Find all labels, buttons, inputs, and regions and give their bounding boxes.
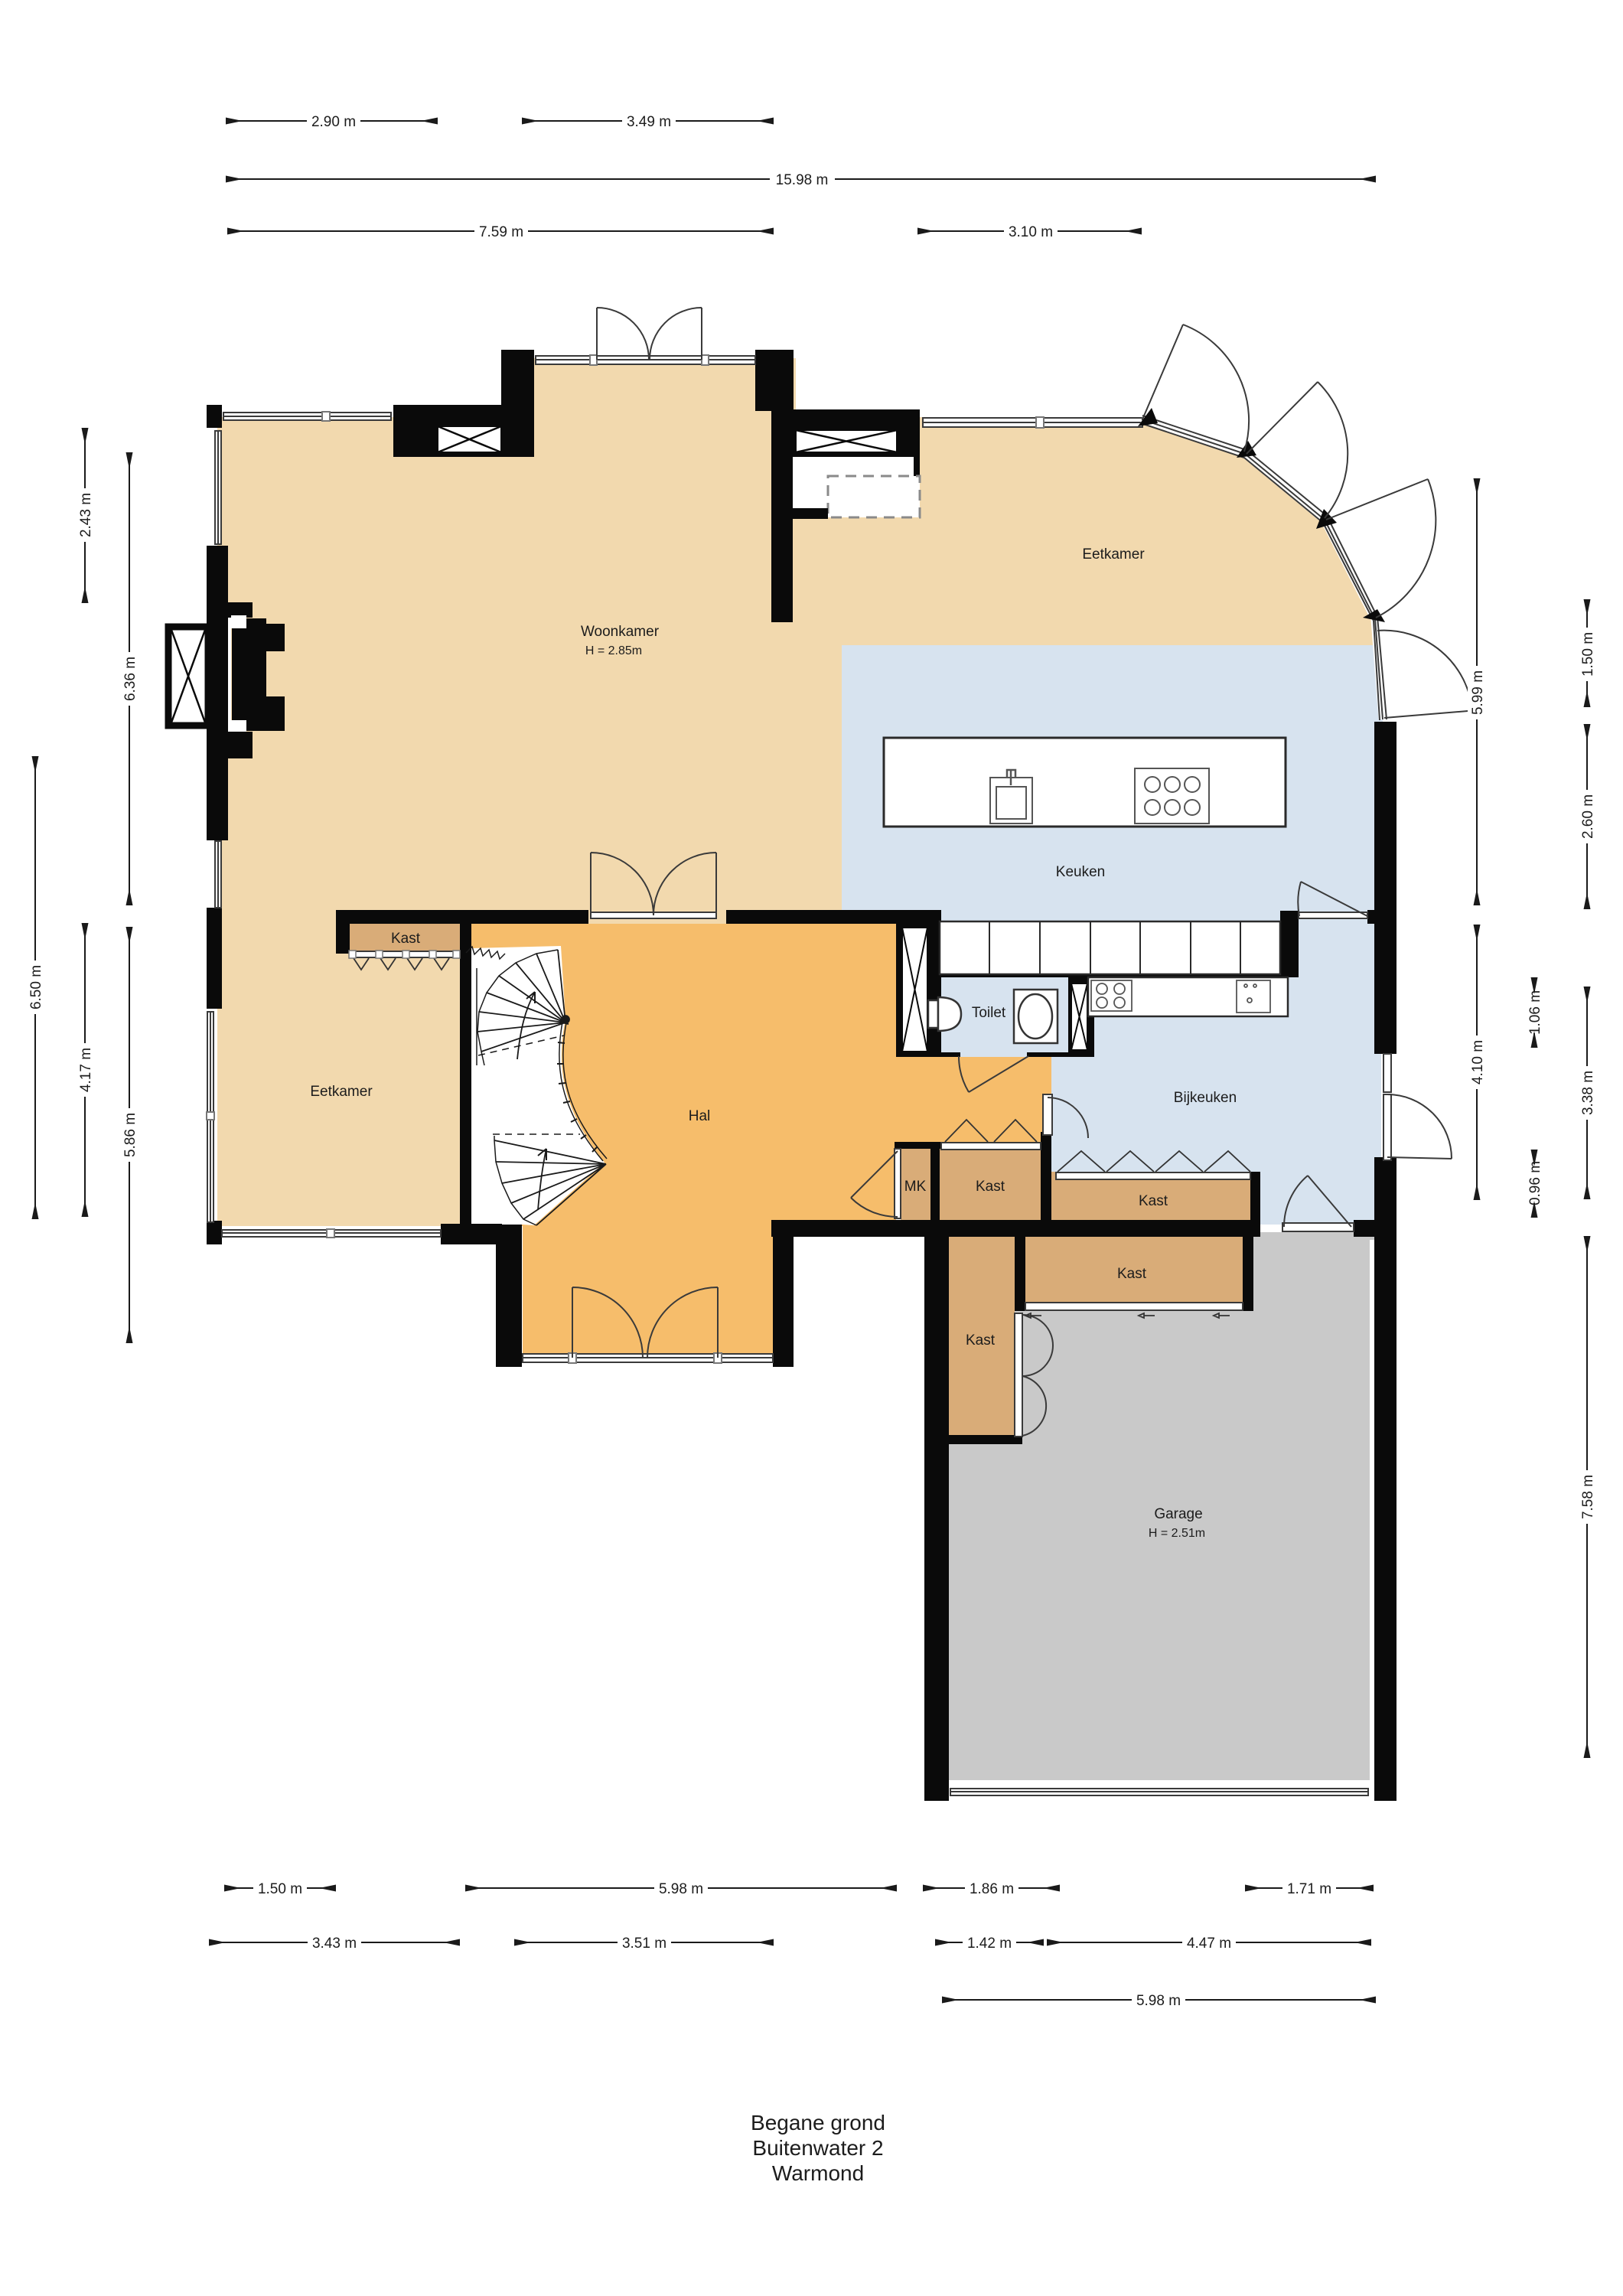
svg-text:3.10 m: 3.10 m [1009, 224, 1053, 240]
svg-text:3.43 m: 3.43 m [312, 1936, 357, 1952]
svg-text:Garage: Garage [1154, 1506, 1202, 1522]
svg-text:Kast: Kast [1139, 1193, 1168, 1209]
svg-text:3.51 m: 3.51 m [622, 1936, 666, 1952]
svg-text:Hal: Hal [689, 1108, 711, 1124]
svg-text:6.50 m: 6.50 m [28, 965, 44, 1009]
svg-text:2.90 m: 2.90 m [311, 114, 356, 130]
svg-text:4.17 m: 4.17 m [78, 1048, 94, 1092]
svg-text:Begane grond: Begane grond [751, 2111, 885, 2135]
svg-text:Keuken: Keuken [1056, 864, 1105, 880]
svg-text:0.96 m: 0.96 m [1527, 1161, 1543, 1205]
svg-text:Kast: Kast [391, 931, 421, 947]
svg-text:Woonkamer: Woonkamer [581, 624, 660, 640]
svg-text:4.10 m: 4.10 m [1470, 1040, 1486, 1084]
svg-text:4.47 m: 4.47 m [1187, 1936, 1231, 1952]
svg-text:3.49 m: 3.49 m [627, 114, 671, 130]
svg-text:1.86 m: 1.86 m [970, 1881, 1014, 1897]
svg-text:2.60 m: 2.60 m [1580, 794, 1596, 839]
svg-text:MK: MK [904, 1179, 927, 1195]
svg-text:Bijkeuken: Bijkeuken [1174, 1090, 1237, 1106]
svg-text:5.99 m: 5.99 m [1470, 670, 1486, 715]
svg-text:Eetkamer: Eetkamer [310, 1084, 373, 1100]
svg-text:7.59 m: 7.59 m [479, 224, 523, 240]
svg-text:5.98 m: 5.98 m [659, 1881, 703, 1897]
svg-text:1.71 m: 1.71 m [1287, 1881, 1331, 1897]
svg-text:1.50 m: 1.50 m [1580, 632, 1596, 677]
svg-text:Kast: Kast [966, 1332, 996, 1349]
svg-text:1.50 m: 1.50 m [258, 1881, 302, 1897]
svg-text:Toilet: Toilet [972, 1005, 1006, 1021]
svg-text:2.43 m: 2.43 m [78, 493, 94, 537]
svg-text:H = 2.51m: H = 2.51m [1149, 1527, 1205, 1540]
svg-text:Kast: Kast [976, 1179, 1005, 1195]
svg-text:H = 2.85m: H = 2.85m [585, 644, 642, 657]
svg-text:Buitenwater 2: Buitenwater 2 [752, 2136, 883, 2160]
svg-text:3.38 m: 3.38 m [1580, 1071, 1596, 1115]
svg-text:Kast: Kast [1117, 1266, 1147, 1282]
svg-text:1.06 m: 1.06 m [1527, 990, 1543, 1035]
svg-text:7.58 m: 7.58 m [1580, 1475, 1596, 1519]
svg-text:6.36 m: 6.36 m [122, 657, 139, 701]
svg-text:5.86 m: 5.86 m [122, 1113, 139, 1157]
svg-text:Warmond: Warmond [772, 2161, 864, 2185]
svg-text:Eetkamer: Eetkamer [1082, 546, 1145, 563]
svg-text:1.42 m: 1.42 m [967, 1936, 1012, 1952]
svg-text:5.98 m: 5.98 m [1136, 1993, 1181, 2009]
svg-text:15.98 m: 15.98 m [776, 172, 829, 188]
